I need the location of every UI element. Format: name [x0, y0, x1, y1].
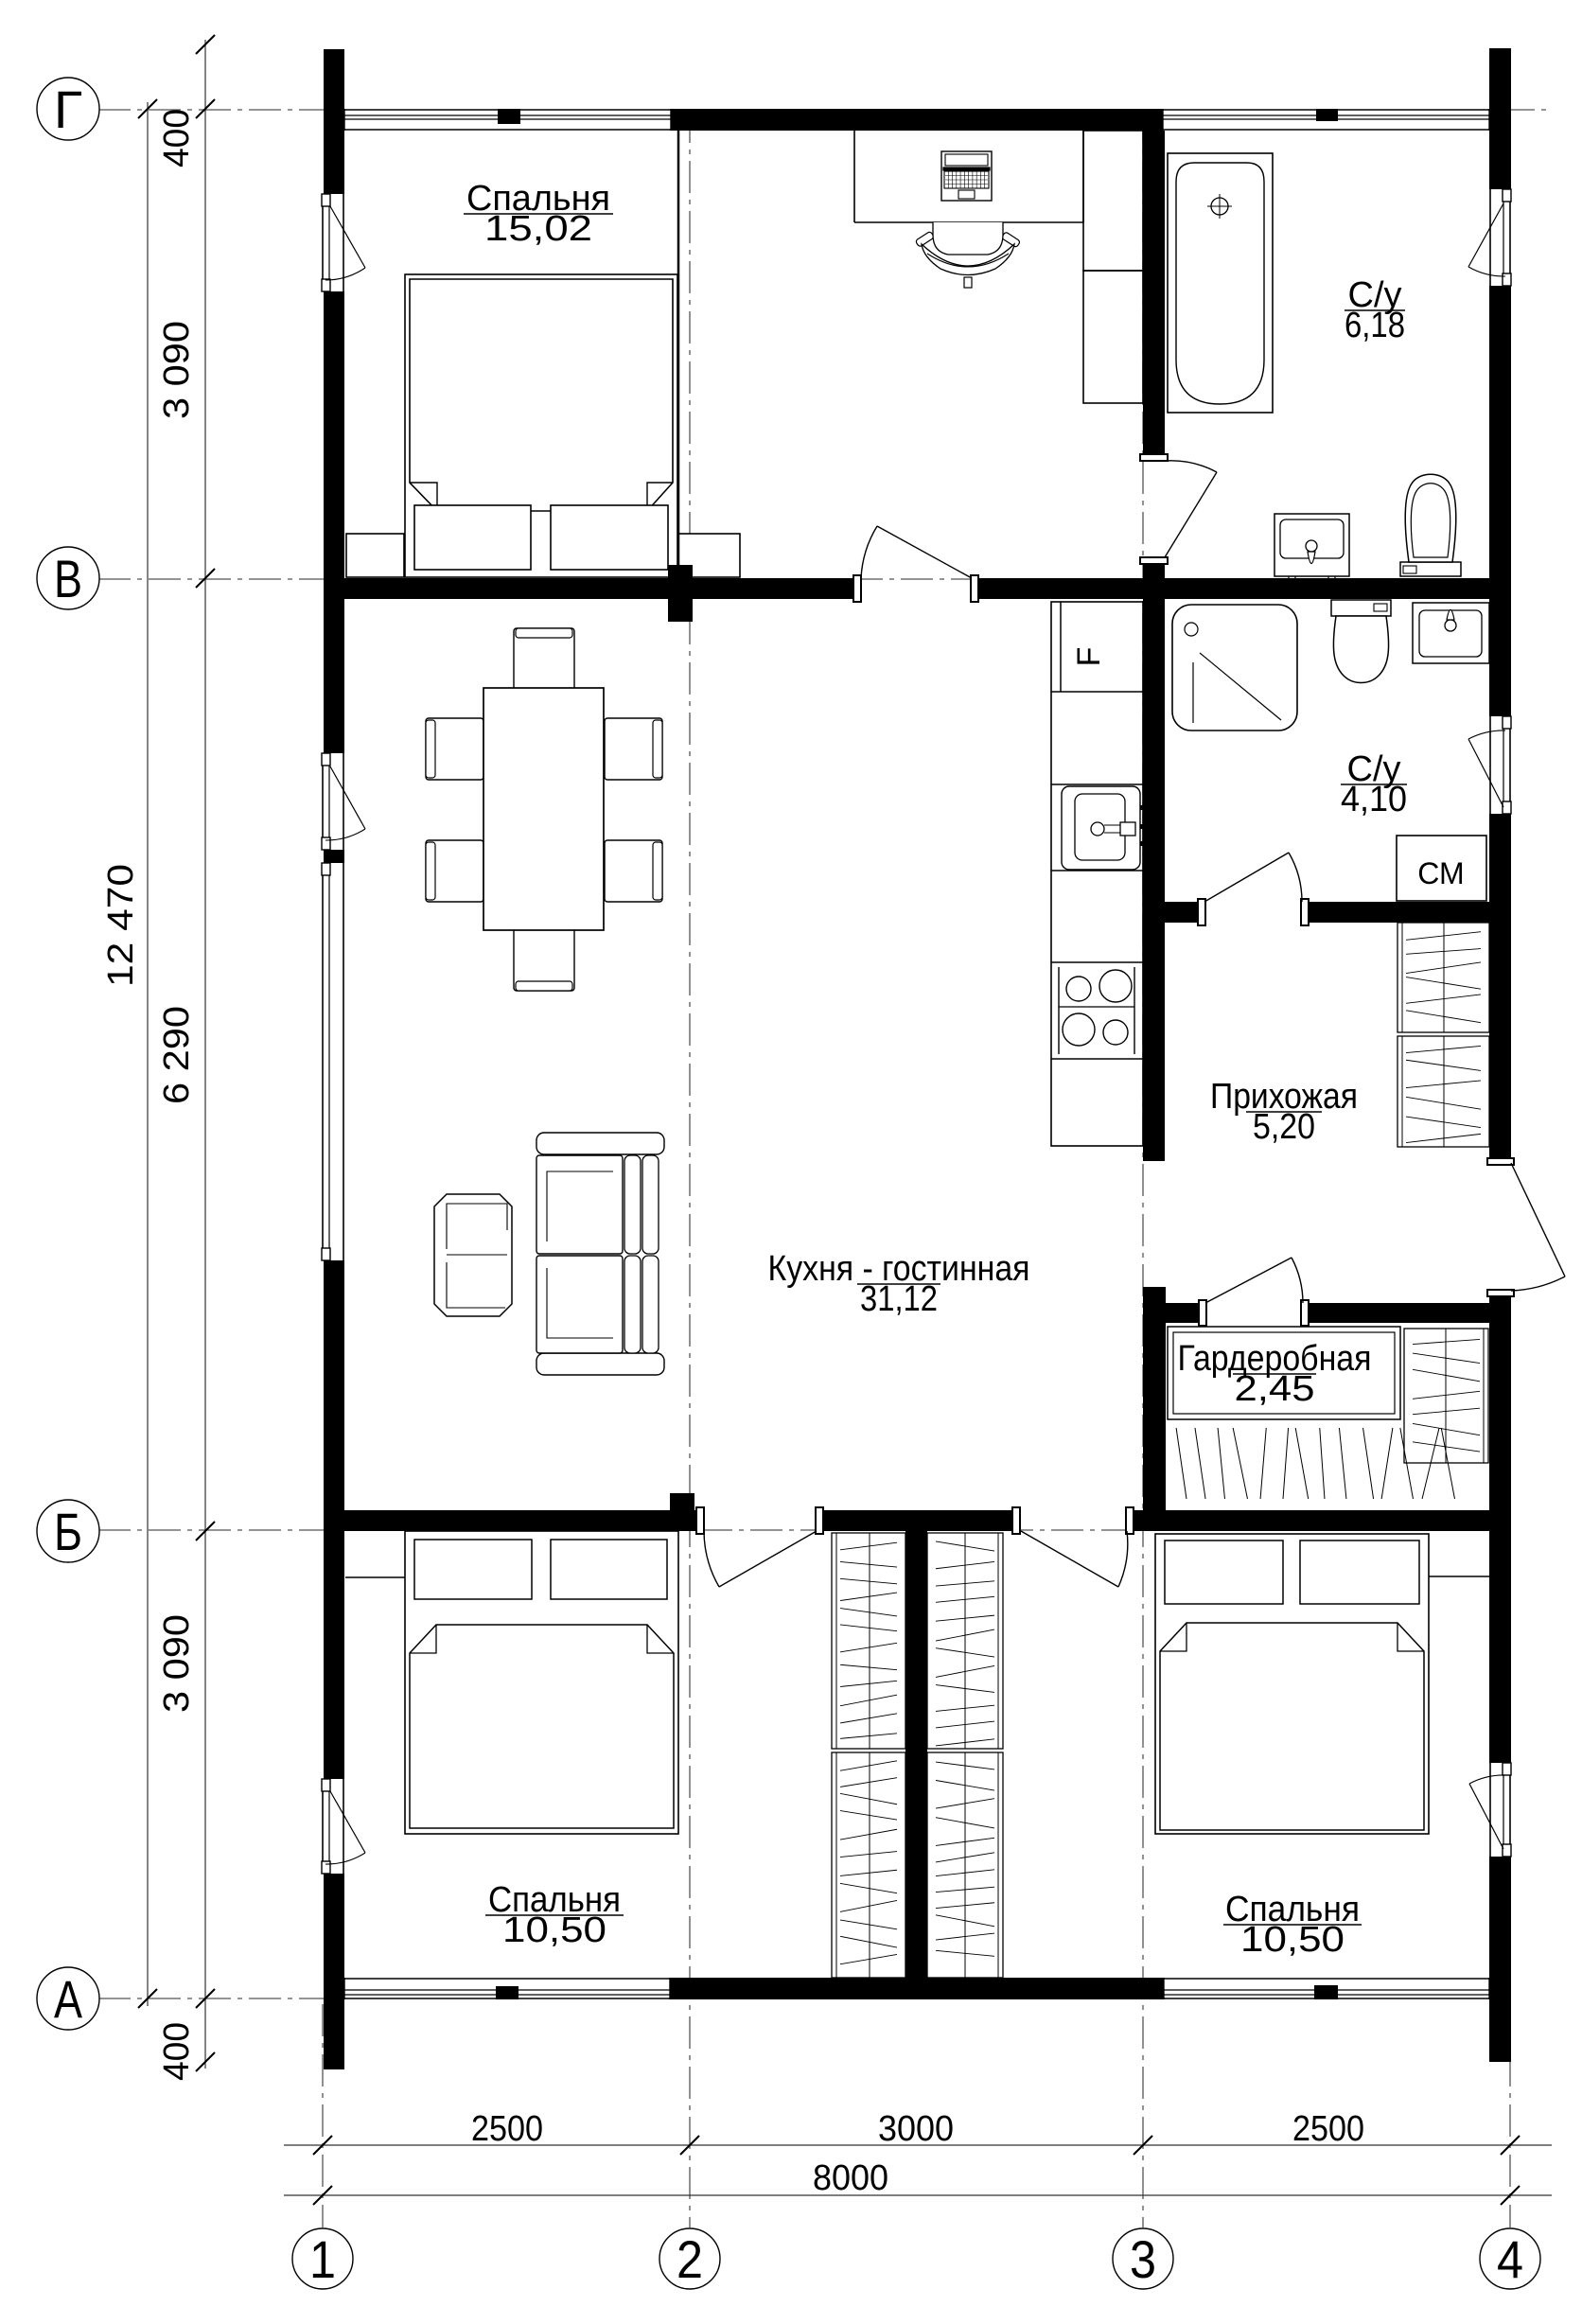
svg-text:6,18: 6,18 [1345, 306, 1405, 345]
svg-text:8000: 8000 [813, 2158, 888, 2198]
svg-text:15,02: 15,02 [484, 209, 592, 249]
svg-text:4,10: 4,10 [1341, 780, 1407, 819]
svg-text:А: А [54, 1969, 83, 2029]
svg-text:4: 4 [1497, 2229, 1523, 2289]
svg-text:3 090: 3 090 [157, 321, 197, 419]
svg-text:2500: 2500 [471, 2109, 543, 2149]
svg-text:10,50: 10,50 [1240, 1920, 1345, 1960]
svg-text:Г: Г [54, 79, 82, 139]
svg-text:2500: 2500 [1292, 2109, 1364, 2149]
svg-text:Б: Б [54, 1502, 82, 1561]
svg-text:СМ: СМ [1417, 856, 1464, 890]
svg-text:6 290: 6 290 [157, 1006, 197, 1104]
svg-text:2: 2 [677, 2229, 703, 2289]
svg-text:В: В [54, 549, 82, 608]
svg-text:2,45: 2,45 [1235, 1369, 1315, 1409]
svg-text:400: 400 [157, 109, 197, 167]
svg-text:1: 1 [309, 2229, 336, 2289]
svg-text:10,50: 10,50 [502, 1910, 606, 1950]
svg-text:400: 400 [157, 2022, 197, 2081]
svg-text:3: 3 [1130, 2229, 1156, 2289]
svg-text:F: F [1071, 647, 1107, 667]
svg-text:31,12: 31,12 [860, 1279, 938, 1319]
svg-text:5,20: 5,20 [1253, 1107, 1315, 1147]
svg-text:12 470: 12 470 [101, 864, 141, 987]
svg-text:3000: 3000 [878, 2109, 954, 2149]
svg-text:3 090: 3 090 [157, 1614, 197, 1713]
